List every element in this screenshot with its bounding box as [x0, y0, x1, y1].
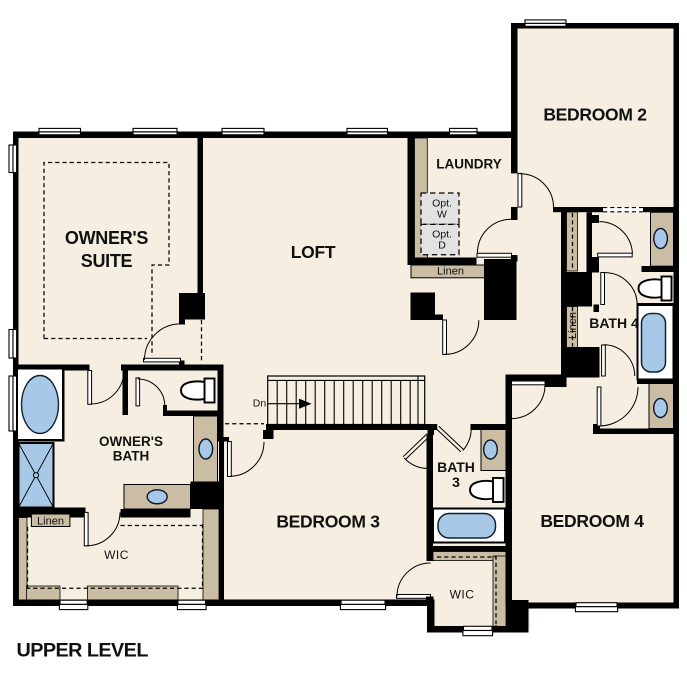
svg-text:Linen: Linen [37, 516, 64, 528]
svg-text:UPPER LEVEL: UPPER LEVEL [17, 640, 149, 662]
svg-text:LAUNDRY: LAUNDRY [436, 157, 502, 172]
svg-text:WIC: WIC [104, 548, 129, 562]
svg-text:BATH: BATH [437, 459, 475, 475]
svg-text:W: W [437, 209, 447, 221]
svg-text:OWNER'S: OWNER'S [99, 434, 163, 449]
svg-text:BEDROOM 2: BEDROOM 2 [543, 105, 647, 125]
svg-text:BEDROOM 4: BEDROOM 4 [540, 511, 644, 531]
svg-text:Linen: Linen [437, 266, 464, 278]
svg-text:WIC: WIC [450, 588, 475, 602]
svg-text:Linen: Linen [567, 312, 579, 339]
svg-text:SUITE: SUITE [81, 251, 133, 271]
svg-text:BATH 4: BATH 4 [589, 315, 639, 331]
svg-text:BATH: BATH [113, 449, 150, 464]
svg-text:3: 3 [452, 474, 460, 490]
svg-text:Dn: Dn [253, 398, 267, 410]
svg-text:OWNER'S: OWNER'S [65, 228, 148, 248]
svg-text:D: D [438, 240, 446, 252]
svg-text:BEDROOM 3: BEDROOM 3 [276, 512, 380, 532]
svg-text:LOFT: LOFT [291, 242, 336, 262]
